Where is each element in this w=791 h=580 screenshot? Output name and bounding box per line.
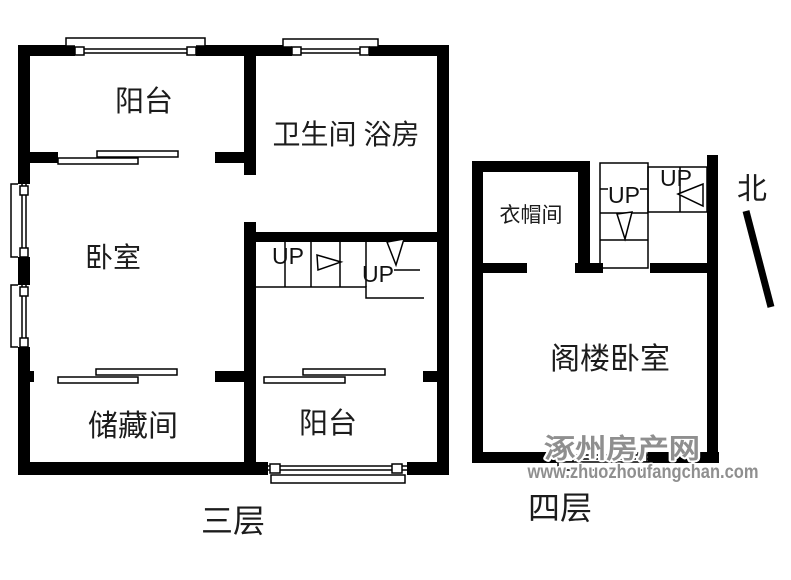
- floorplan-page: UP UP 阳台 卫生间 浴房 卧室 储藏间 阳台 三层: [0, 0, 791, 580]
- f4-left-wall: [472, 161, 483, 463]
- watermark: 涿州房产网 www.zhuozhoufangchan.com: [527, 434, 759, 483]
- f3-window-left-upper: [11, 184, 30, 257]
- f4-cloakroom-label: 衣帽间: [500, 203, 563, 227]
- stair-edge: [256, 287, 424, 298]
- f3-balcony-bottom-label: 阳台: [299, 407, 357, 440]
- f3-sliding-door-storage: [58, 369, 177, 383]
- f4-up-label-2: UP: [660, 165, 692, 191]
- f3-sliding-door-top-balcony: [58, 151, 178, 164]
- watermark-site-url: www.zhuozhoufangchan.com: [527, 462, 759, 483]
- f3-left-wall: [18, 45, 30, 475]
- north-arrow-icon: [746, 211, 771, 307]
- f4-cloakroom-bottom-wall-right: [575, 263, 603, 273]
- f4-cloakroom-bottom-wall-left: [472, 263, 527, 273]
- f3-middle-wall-lower: [244, 222, 256, 462]
- f4-attic-bedroom-label: 阁楼卧室: [550, 343, 670, 376]
- f3-balcony2-wall-right: [423, 371, 437, 382]
- f3-bedroom-label: 卧室: [85, 242, 141, 274]
- f4-caption: 四层: [528, 490, 592, 526]
- f3-stair-wall: [256, 232, 437, 242]
- f3-storage-wall-left: [18, 371, 34, 382]
- f4-stair-bottom-wall: [650, 263, 707, 273]
- f3-middle-wall-upper: [244, 45, 256, 175]
- stair-direction-right-icon: [317, 255, 341, 270]
- floor3-plan: UP UP 阳台 卫生间 浴房 卧室 储藏间 阳台 三层: [11, 38, 449, 539]
- f4-cloakroom-top-wall: [472, 161, 590, 172]
- f3-window-bottom-balcony: [268, 462, 407, 483]
- stair-direction-down-icon: [617, 212, 632, 239]
- f4-cloakroom-right-wall: [578, 161, 590, 268]
- f3-balcony-top-label: 阳台: [115, 85, 173, 118]
- f4-up-label-1: UP: [608, 182, 640, 208]
- f3-bathroom-label: 卫生间 浴房: [272, 119, 419, 151]
- compass: 北: [737, 173, 771, 307]
- f3-stairs: UP UP: [256, 239, 424, 298]
- f3-window-top-balcony: [66, 38, 205, 56]
- f3-storage-wall-right: [215, 371, 244, 382]
- f3-window-left-lower: [11, 285, 30, 347]
- f3-sliding-door-bottom-balcony: [264, 369, 385, 383]
- f3-balcony-wall-left: [30, 152, 58, 163]
- f3-up-label-2: UP: [362, 261, 394, 287]
- f3-up-label-1: UP: [272, 243, 304, 269]
- north-label: 北: [737, 173, 767, 206]
- f4-right-wall: [707, 155, 718, 463]
- watermark-site-name: 涿州房产网: [544, 434, 700, 464]
- f4-stairs: UP UP: [600, 163, 707, 268]
- f3-window-top-bathroom: [283, 39, 378, 56]
- f3-storage-label: 储藏间: [88, 410, 178, 443]
- f3-caption: 三层: [201, 503, 265, 539]
- floorplan-canvas: UP UP 阳台 卫生间 浴房 卧室 储藏间 阳台 三层: [0, 0, 791, 580]
- f3-right-wall: [437, 45, 449, 475]
